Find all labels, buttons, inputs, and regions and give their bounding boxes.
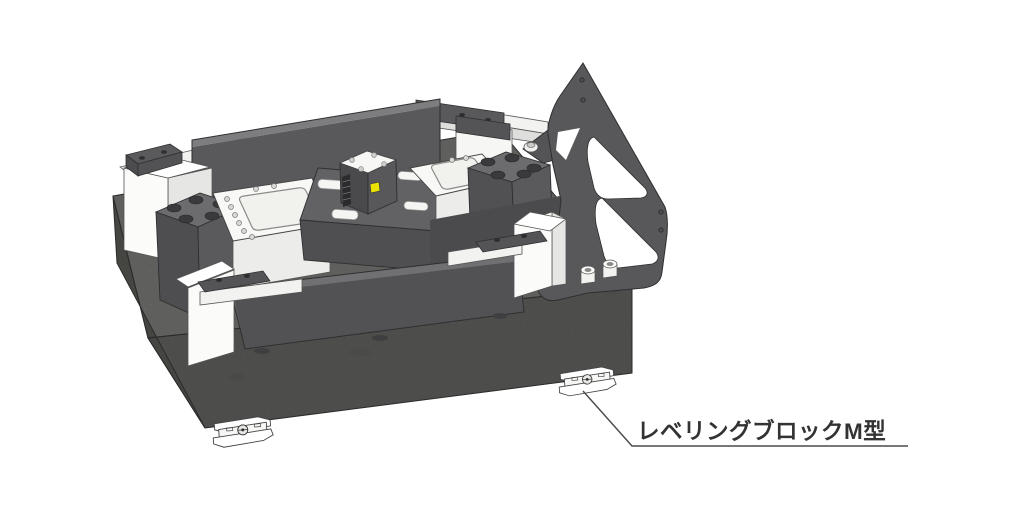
assembly-drawing: レベリングブロックM型 [0,0,1024,512]
callout: レベリングブロックM型 [583,391,908,446]
connector-striped [342,174,351,207]
technical-illustration: レベリングブロックM型 [0,0,1024,512]
granite-hole [349,348,371,356]
sensor-cube [340,151,397,214]
bar-foot [254,348,270,354]
yellow-marker [370,182,380,193]
bar-foot [372,335,388,341]
granite-hole [229,374,245,381]
bar-foot [493,313,507,319]
callout-label: レベリングブロックM型 [637,418,886,444]
